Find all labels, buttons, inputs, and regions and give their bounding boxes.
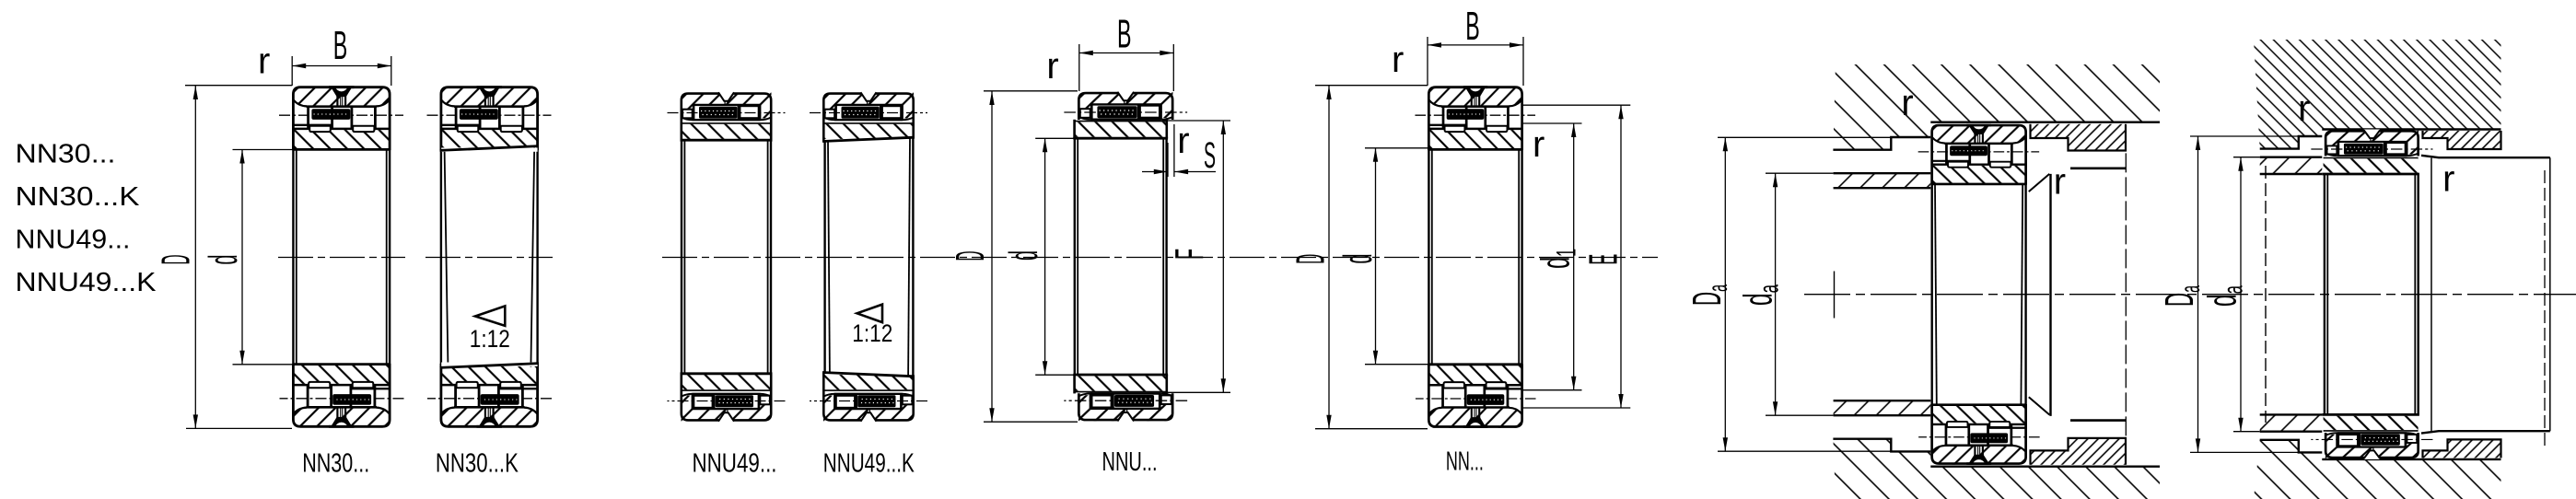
svg-text:1:12: 1:12 xyxy=(852,319,892,347)
svg-text:NNU49...: NNU49... xyxy=(693,449,777,479)
svg-text:d: d xyxy=(1001,250,1046,261)
svg-text:D: D xyxy=(154,255,199,265)
svg-text:NN30...K: NN30...K xyxy=(16,182,141,212)
svg-text:d: d xyxy=(1335,254,1381,264)
svg-text:r: r xyxy=(1901,83,1913,123)
svg-text:D: D xyxy=(948,251,993,261)
svg-text:NN30...: NN30... xyxy=(302,449,369,479)
svg-text:1:12: 1:12 xyxy=(470,325,510,353)
svg-text:NNU...: NNU... xyxy=(1102,447,1158,477)
svg-text:r: r xyxy=(2054,162,2066,203)
svg-text:r: r xyxy=(1392,40,1404,80)
svg-text:r: r xyxy=(1177,121,1189,161)
svg-text:NN...: NN... xyxy=(1446,447,1484,476)
svg-text:NN30...: NN30... xyxy=(16,140,116,169)
svg-text:NNU49...K: NNU49...K xyxy=(823,449,915,479)
svg-text:S: S xyxy=(1204,135,1216,176)
svg-text:d: d xyxy=(201,255,246,265)
svg-text:NNU49...: NNU49... xyxy=(16,226,131,255)
svg-text:NNU49...K: NNU49...K xyxy=(16,268,157,297)
svg-text:r: r xyxy=(1046,46,1058,87)
svg-text:NN30...K: NN30...K xyxy=(436,449,519,479)
svg-text:E: E xyxy=(1581,254,1626,265)
svg-text:B: B xyxy=(1117,12,1132,57)
svg-text:r: r xyxy=(1533,124,1544,165)
svg-text:D: D xyxy=(1288,254,1334,264)
svg-text:r: r xyxy=(2298,88,2310,129)
svg-text:B: B xyxy=(333,23,348,68)
svg-text:r: r xyxy=(2442,159,2454,200)
svg-text:B: B xyxy=(1465,4,1480,49)
svg-text:r: r xyxy=(258,41,270,82)
svg-text:F: F xyxy=(1167,249,1212,260)
